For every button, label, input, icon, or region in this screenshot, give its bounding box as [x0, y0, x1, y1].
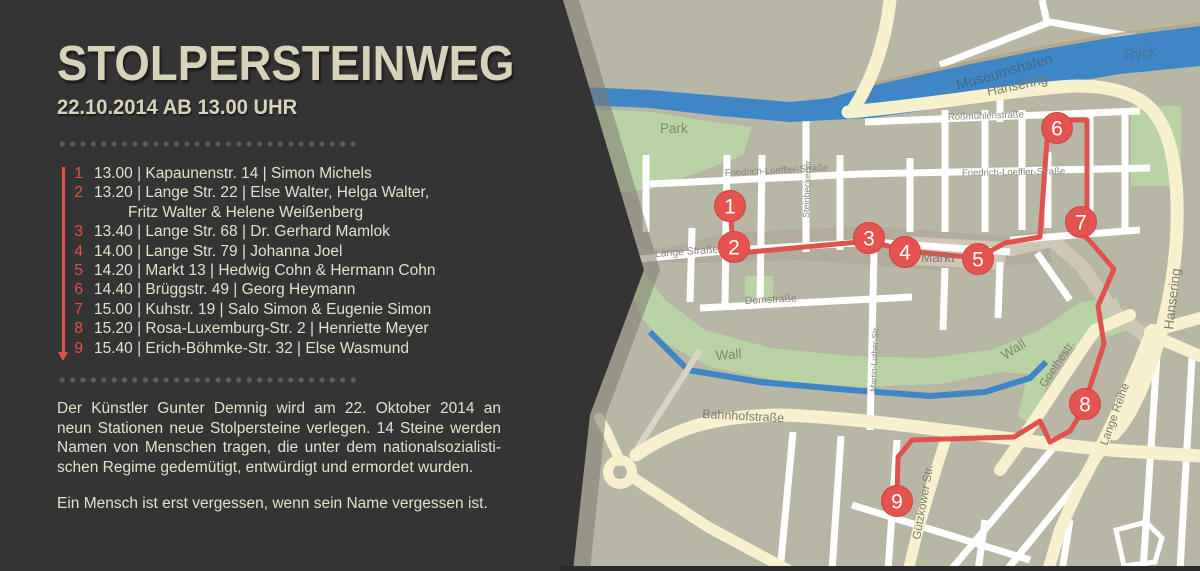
map-marker-8: 8 [1070, 389, 1101, 420]
bottom-strip [560, 566, 1200, 571]
svg-text:8: 8 [1079, 394, 1091, 417]
station-item-2: 2 13.20 | Lange Str. 22 | Else Walter, H… [57, 183, 472, 222]
label-markt: Markt [921, 250, 955, 265]
svg-text:6: 6 [1051, 118, 1063, 141]
svg-text:1: 1 [724, 196, 736, 219]
map-marker-3: 3 [854, 223, 885, 254]
station-item-7: 7 15.00 | Kuhstr. 19 | Salo Simon & Euge… [57, 300, 472, 319]
svg-text:3: 3 [863, 228, 875, 251]
station-item-6: 6 14.40 | Brüggstr. 49 | Georg Heymann [57, 280, 472, 299]
svg-text:2: 2 [728, 237, 740, 260]
dotted-separator-top [57, 141, 360, 147]
station-item-9: 9 15.40 | Erich-Böhmke-Str. 32 | Else Wa… [57, 339, 472, 358]
station-list: 1 13.00 | Kapaunenstr. 14 | Simon Michel… [57, 164, 472, 358]
svg-text:5: 5 [972, 249, 984, 272]
label-friedrich-loeffler-e: Friedrich-Loeffler-Straße [962, 166, 1065, 179]
station-item-3: 3 13.40 | Lange Str. 68 | Dr. Gerhard Ma… [57, 222, 472, 241]
map-marker-7: 7 [1066, 207, 1097, 238]
svg-text:9: 9 [891, 491, 903, 514]
label-park: Park [660, 121, 688, 136]
station-item-4: 4 14.00 | Lange Str. 79 | Johanna Joel [57, 242, 472, 261]
map-marker-6: 6 [1042, 113, 1073, 144]
station-item-5: 5 14.20 | Markt 13 | Hedwig Cohn & Herma… [57, 261, 472, 280]
map-marker-2: 2 [719, 232, 750, 263]
svg-text:4: 4 [899, 242, 911, 265]
map-marker-9: 9 [882, 486, 913, 517]
event-date: 22.10.2014 AB 13.00 UHR [57, 96, 297, 120]
stolpersteinweg-flyer: 1 2 3 4 5 6 7 [0, 0, 1200, 571]
map-marker-4: 4 [890, 237, 921, 268]
info-panel: STOLPERSTEINWEG 22.10.2014 AB 13.00 UHR … [0, 0, 560, 571]
station-item-1: 1 13.00 | Kapaunenstr. 14 | Simon Michel… [57, 164, 472, 183]
page-title: STOLPERSTEINWEG [57, 40, 514, 89]
svg-text:7: 7 [1075, 212, 1087, 235]
closing-quote: Ein Mensch ist erst vergessen, wenn sein… [57, 494, 501, 514]
map-marker-1: 1 [715, 191, 746, 222]
label-wall-w: Wall [715, 346, 742, 363]
dotted-separator-bottom [57, 377, 360, 383]
description-paragraph: Der Künstler Gunter Demnig wird am 22. O… [57, 399, 501, 477]
station-item-8: 8 15.20 | Rosa-Luxemburg-Str. 2 | Henrie… [57, 319, 472, 338]
map-marker-5: 5 [963, 244, 994, 275]
label-steinbeckerstr: Steinbeckerstr. [801, 158, 813, 218]
